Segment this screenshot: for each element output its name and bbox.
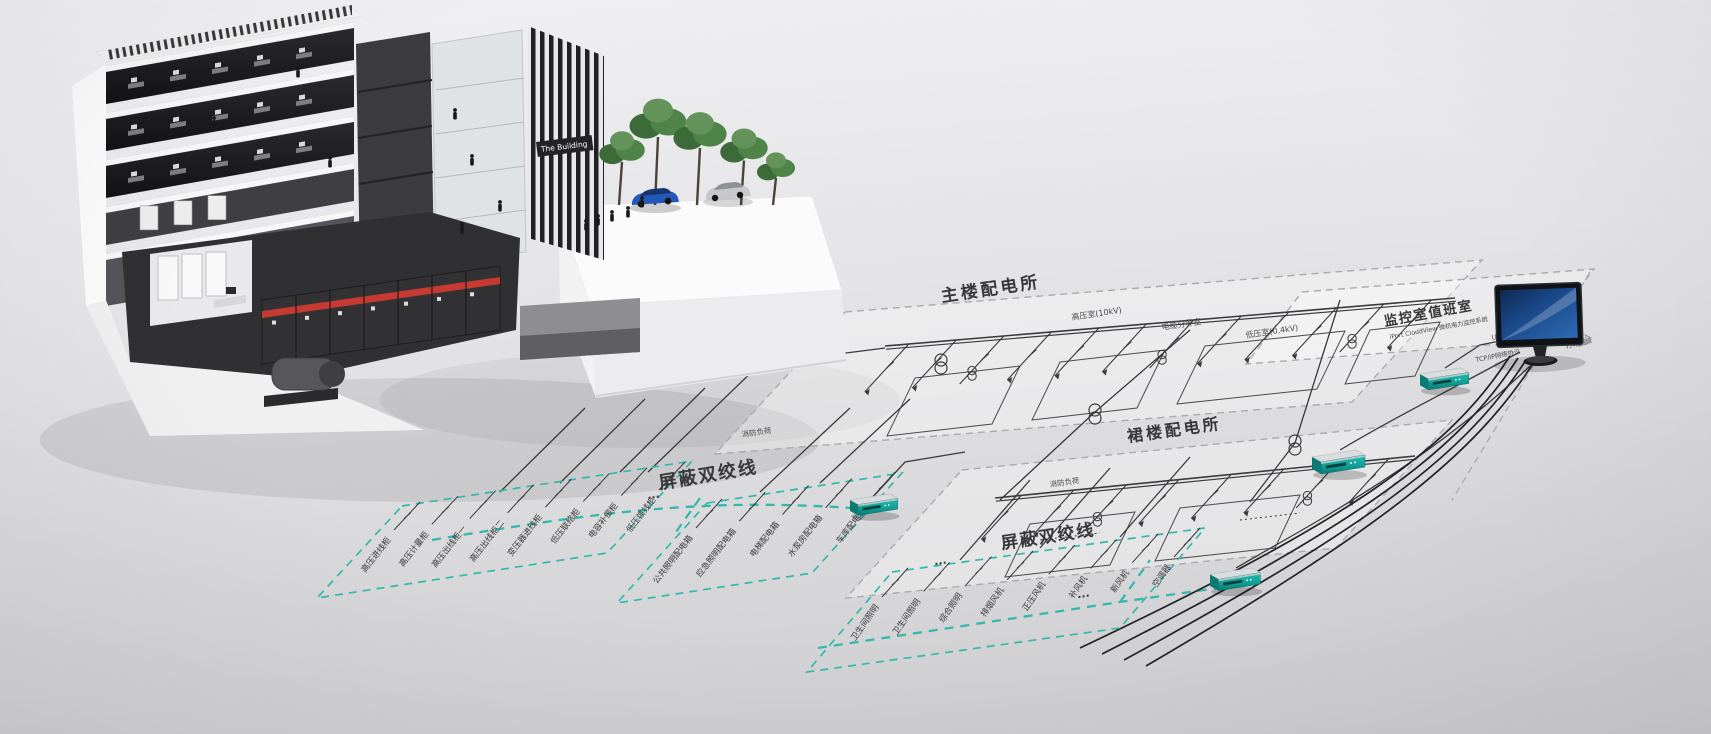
stp-bus-2 xyxy=(818,586,1232,648)
data-collector-device xyxy=(850,494,900,521)
scene: 高压进线柜高压计量柜高压出线柜一高压出线柜二变压器进线柜低压联络柜电容补偿柜低压… xyxy=(0,0,1711,734)
feeder-label: 电梯配电箱 xyxy=(747,520,781,559)
blue-car xyxy=(629,188,681,213)
feeder-label: 卫生间照明 xyxy=(848,602,880,642)
silver-car xyxy=(703,182,753,207)
ellipsis-2: ··· xyxy=(933,556,947,571)
feeder-label: 高压出线柜一 xyxy=(429,523,468,569)
feeder-label: 卫生间照明 xyxy=(890,597,922,637)
feeder-label: 应急照明配电箱 xyxy=(694,526,738,578)
data-collector-device xyxy=(1210,568,1262,597)
feeder-label: 正压风机 xyxy=(1020,579,1048,613)
ellipsis-3: ··· xyxy=(1076,589,1090,604)
illustration-canvas: 高压进线柜高压计量柜高压出线柜一高压出线柜二变压器进线柜低压联络柜电容补偿柜低压… xyxy=(0,0,1711,734)
feeder-label: 高压出线柜二 xyxy=(467,518,506,564)
feeder-label: 水泵房配电箱 xyxy=(786,513,825,559)
feeder-label: 新风机 xyxy=(1108,568,1131,595)
feeder-label: 电容补偿柜 xyxy=(586,501,620,540)
feeder-label: 综合照明 xyxy=(937,591,964,624)
monitor-computer xyxy=(1491,282,1586,373)
feeder-label: 高压计量柜 xyxy=(397,529,431,568)
feeder-label: 排烟风机 xyxy=(978,585,1006,619)
feeder-label: 高压进线柜 xyxy=(359,535,393,574)
data-collector-device xyxy=(1420,368,1471,396)
feeder-label: 变压器进线柜 xyxy=(505,512,544,558)
ellipsis-1: ··· xyxy=(646,490,660,505)
feeder-label: 低压联络柜 xyxy=(548,507,582,546)
trees xyxy=(599,99,795,205)
